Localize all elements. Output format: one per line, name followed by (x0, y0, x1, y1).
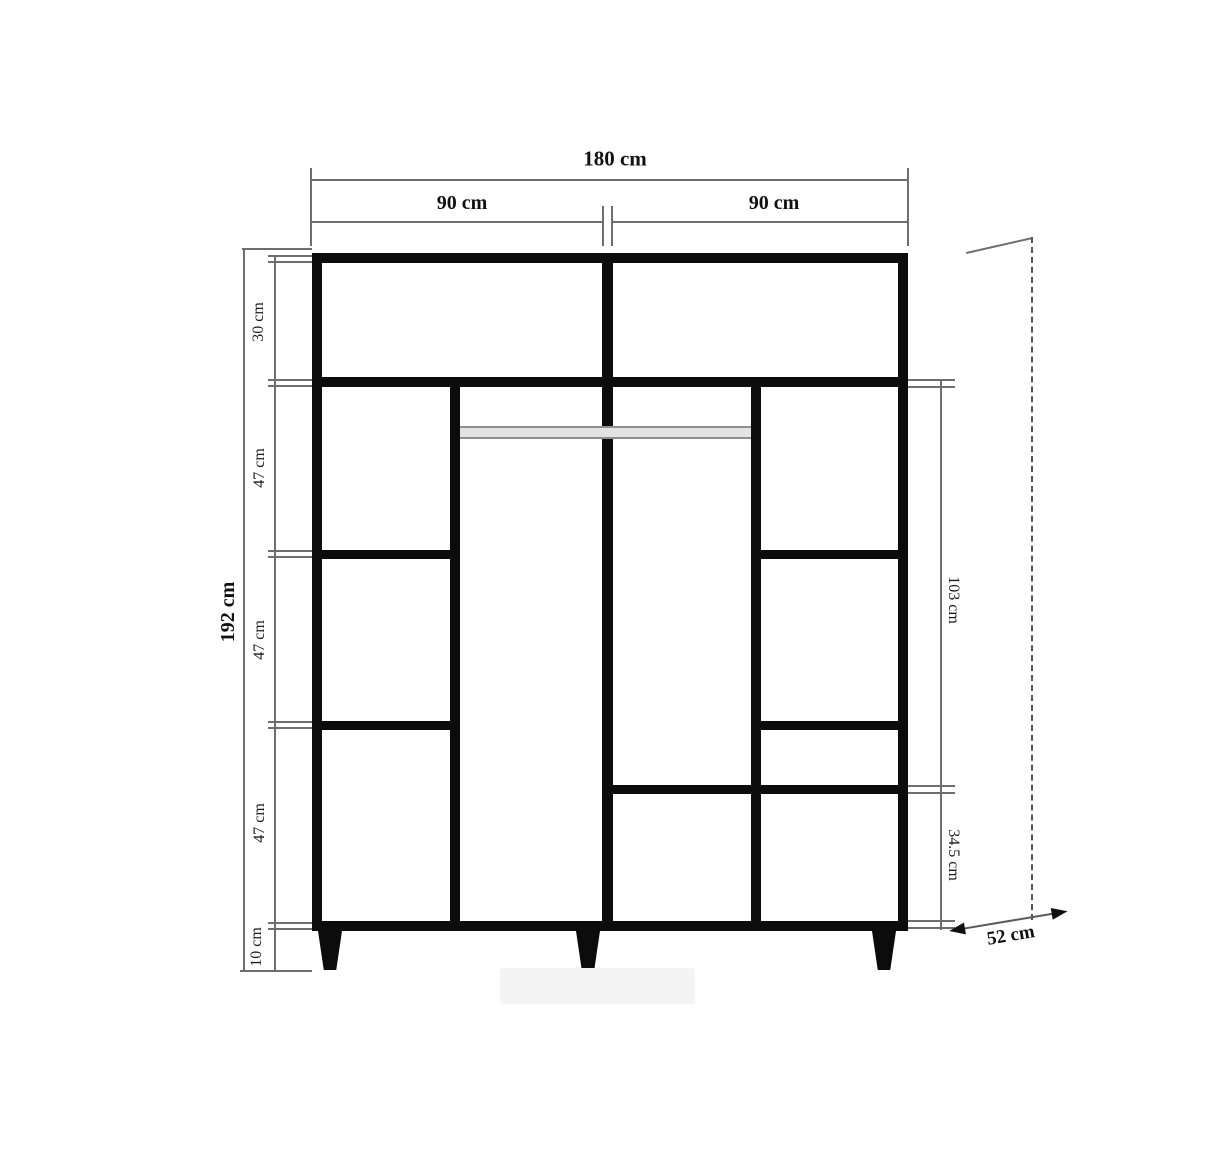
dim-tick-top-outer (242, 248, 312, 250)
total-height-label: 192 cm (218, 582, 238, 643)
wardrobe-dimension-drawing: 180 cm 90 cm 90 cm 192 cm 30 cm 47 cm 47… (0, 0, 1214, 1161)
dim-tick-r2a (907, 785, 955, 787)
right-section-width-label: 90 cm (749, 193, 800, 213)
dim-tick-r1a (907, 379, 955, 381)
center-divider (602, 253, 613, 931)
left-section-width-label: 90 cm (437, 193, 488, 213)
upper-shelf-label: 47 cm (252, 448, 268, 488)
left-shelf-upper (322, 550, 450, 559)
dim-tick-1a (268, 255, 312, 257)
depth-projection-line (966, 237, 1033, 253)
right-side-panel (898, 253, 908, 931)
right-inner-divider (751, 377, 761, 921)
top-shelf (322, 377, 898, 387)
dim-line-right-segments (940, 379, 942, 930)
dim-tick-3a (268, 550, 312, 552)
middle-right-shelf (613, 785, 898, 794)
dim-line-height-segments (274, 255, 276, 971)
dim-tick-2b (268, 385, 312, 387)
depth-dimension: 52 cm (948, 901, 1073, 960)
leg-center (576, 931, 600, 970)
leg-height-label: 10 cm (249, 927, 265, 967)
dim-line-right-section (613, 221, 908, 223)
dim-line-total-width (310, 179, 908, 181)
dim-tick-center-a (602, 206, 604, 246)
left-shelf-lower (322, 721, 450, 730)
lower-shelf-label: 47 cm (252, 803, 268, 843)
dim-tick-2a (268, 379, 312, 381)
right-lower-height-label: 34.5 cm (945, 829, 961, 881)
dim-tick-total-right (907, 168, 909, 246)
dim-tick-5b (268, 928, 312, 930)
watermark-smudge (500, 968, 695, 1004)
dim-tick-5a (268, 922, 312, 924)
dim-tick-1b (268, 261, 312, 263)
dim-tick-r2b (907, 792, 955, 794)
dim-line-total-height (243, 248, 245, 971)
dim-tick-bottom-outer (240, 970, 312, 972)
right-upper-height-label: 103 cm (945, 576, 961, 624)
leg-right (872, 931, 896, 970)
right-shelf-upper (761, 550, 898, 559)
depth-label: 52 cm (950, 915, 1072, 957)
top-compartment-label: 30 cm (251, 302, 267, 342)
dim-line-left-section (310, 221, 602, 223)
dim-tick-4a (268, 721, 312, 723)
leg-left (318, 931, 342, 970)
left-side-panel (312, 253, 322, 931)
dim-tick-4b (268, 727, 312, 729)
depth-dashed-line (1031, 237, 1033, 920)
left-inner-divider (450, 377, 460, 921)
right-shelf-lower (761, 721, 898, 730)
hanging-rod (460, 426, 751, 439)
middle-shelf-label: 47 cm (252, 620, 268, 660)
dim-tick-total-left (310, 168, 312, 246)
dim-tick-r1b (907, 386, 955, 388)
dim-tick-3b (268, 556, 312, 558)
total-width-label: 180 cm (583, 149, 647, 170)
dim-tick-center-b (611, 206, 613, 246)
